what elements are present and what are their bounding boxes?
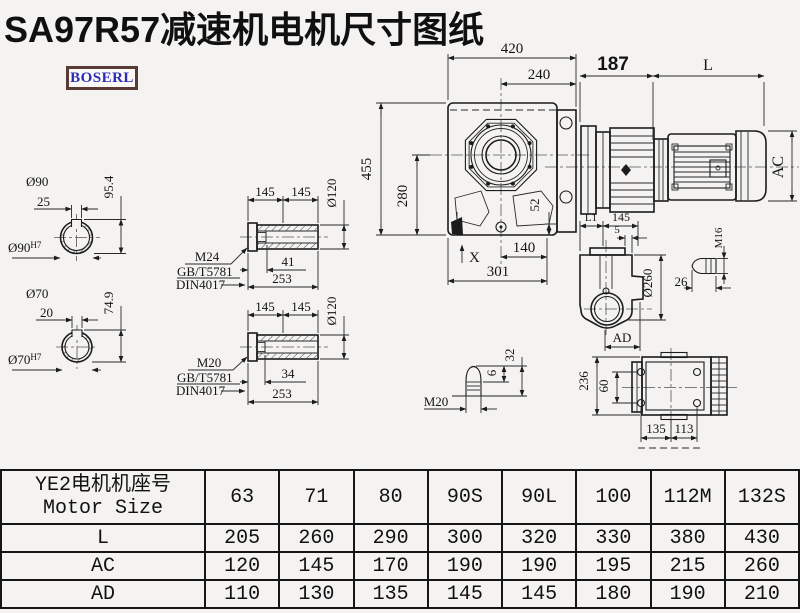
dim-32: 32 [502, 349, 517, 362]
dim-140: 140 [513, 240, 536, 256]
dim-6: 6 [484, 369, 499, 376]
table-row-AC: AC 120 145 170 190 190 195 215 260 [1, 552, 799, 580]
dim-145d: 145 [291, 299, 311, 314]
table-col-71: 71 [279, 470, 353, 524]
table-cell: 190 [502, 552, 576, 580]
table-cell: 180 [576, 580, 650, 608]
hollow-shaft-2: 145 145 Ø120 34 253 M20 GB/T5781 DIN4017 [176, 297, 349, 405]
dim-74-9: 74.9 [101, 292, 116, 315]
label-din4017-a: DIN4017 [176, 277, 226, 292]
dim-240: 240 [528, 67, 551, 83]
table-cell: 145 [428, 580, 502, 608]
table-cell: 290 [354, 524, 428, 552]
table-row-AD: AD 110 130 135 145 145 180 190 210 [1, 580, 799, 608]
table-col-90l: 90L [502, 470, 576, 524]
table-cell: 110 [205, 580, 279, 608]
dim-420: 420 [501, 41, 524, 57]
gearbox-side-view: L1 145 5 Ø260 AD [580, 210, 666, 351]
dim-52: 52 [527, 199, 542, 212]
dim-145b: 145 [291, 184, 311, 199]
table-col-100: 100 [576, 470, 650, 524]
dim-dia120b: Ø120 [324, 297, 339, 326]
hollow-shaft-1: 145 145 Ø120 41 253 M24 GB/T5781 DIN4017 [176, 179, 349, 292]
table-row-L: L 205 260 290 300 320 330 380 430 [1, 524, 799, 552]
retaining-bolt-detail: M20 6 32 [424, 349, 527, 414]
dim-L: L [703, 57, 713, 74]
dim-95-4: 95.4 [101, 175, 116, 198]
table-cell: 330 [576, 524, 650, 552]
table-cell: 215 [651, 552, 725, 580]
gearbox-front-view [430, 78, 799, 268]
table-col-80: 80 [354, 470, 428, 524]
table-cell: 205 [205, 524, 279, 552]
label-m20: M20 [197, 355, 222, 370]
dim-34: 34 [282, 366, 296, 381]
dim-dia260: Ø260 [640, 269, 655, 298]
table-cell: 260 [725, 552, 799, 580]
dim-135: 135 [646, 421, 666, 436]
dim-455: 455 [359, 158, 375, 181]
table-col-132s: 132S [725, 470, 799, 524]
dimension-drawing: 420 240 187 L 455 [0, 0, 800, 469]
coupling-diamond-icon [621, 164, 631, 176]
dim-26: 26 [675, 274, 689, 289]
dim-dia70: Ø70 [26, 286, 48, 301]
dim-301: 301 [487, 264, 510, 280]
dim-L1: L1 [585, 212, 597, 224]
shaft-section-70: Ø70 20 74.9 Ø70H7 [8, 286, 126, 370]
dim-key25: 25 [37, 194, 50, 209]
label-m24: M24 [195, 249, 220, 264]
dim-bore90: Ø90H7 [8, 240, 42, 255]
table-col-90s: 90S [428, 470, 502, 524]
dim-253a: 253 [272, 271, 292, 286]
table-cell: 260 [279, 524, 353, 552]
table-cell: 170 [354, 552, 428, 580]
table-cell: 300 [428, 524, 502, 552]
dim-5: 5 [614, 224, 620, 236]
dim-145c: 145 [255, 299, 275, 314]
table-cell: 195 [576, 552, 650, 580]
dim-AC: AC [770, 156, 787, 178]
main-view-dimensions: 420 240 187 L 455 [359, 41, 797, 285]
row-label-AD: AD [1, 580, 205, 608]
motor-side-view [581, 126, 766, 214]
dim-236: 236 [576, 371, 591, 391]
table-cell: 145 [502, 580, 576, 608]
table-cell: 135 [354, 580, 428, 608]
table-cell: 210 [725, 580, 799, 608]
dim-41: 41 [282, 254, 295, 269]
dim-113: 113 [674, 421, 693, 436]
dim-X: X [469, 250, 480, 266]
dim-145a: 145 [255, 184, 275, 199]
table-cell: 145 [279, 552, 353, 580]
table-cell: 190 [428, 552, 502, 580]
gearbox-rear-view: 236 60 135 113 [576, 348, 737, 448]
dim-M16: M16 [713, 227, 725, 248]
table-cell: 430 [725, 524, 799, 552]
dim-key20: 20 [40, 305, 53, 320]
table-cell: 190 [651, 580, 725, 608]
dim-145-side: 145 [612, 210, 630, 224]
shaft-section-90: Ø90 25 95.4 Ø90H7 [8, 174, 126, 261]
dim-dia120a: Ø120 [324, 179, 339, 208]
table-cell: 130 [279, 580, 353, 608]
table-cell: 380 [651, 524, 725, 552]
dim-dia90: Ø90 [26, 174, 48, 189]
table-col-63: 63 [205, 470, 279, 524]
label-din4017-b: DIN4017 [176, 383, 226, 398]
table-cell: 320 [502, 524, 576, 552]
dim-AD: AD [613, 330, 632, 345]
dim-187: 187 [597, 54, 629, 75]
row-label-L: L [1, 524, 205, 552]
table-header-cn: YE2电机机座号 [2, 474, 204, 497]
table-header-motor-size: YE2电机机座号 Motor Size [1, 470, 205, 524]
dim-60: 60 [596, 380, 611, 393]
table-cell: 120 [205, 552, 279, 580]
drawing-page: SA97R57减速机电机尺寸图纸 BOSERL [0, 0, 800, 613]
dim-m20-bolt: M20 [424, 394, 449, 409]
dim-280: 280 [395, 185, 411, 208]
row-label-AC: AC [1, 552, 205, 580]
motor-size-table: YE2电机机座号 Motor Size 63 71 80 90S 90L 100… [0, 469, 800, 609]
table-header-en: Motor Size [2, 497, 204, 520]
dim-253b: 253 [272, 386, 292, 401]
dim-bore70: Ø70H7 [8, 352, 42, 367]
table-col-112m: 112M [651, 470, 725, 524]
m16-bolt-detail: M16 26 [675, 227, 732, 292]
